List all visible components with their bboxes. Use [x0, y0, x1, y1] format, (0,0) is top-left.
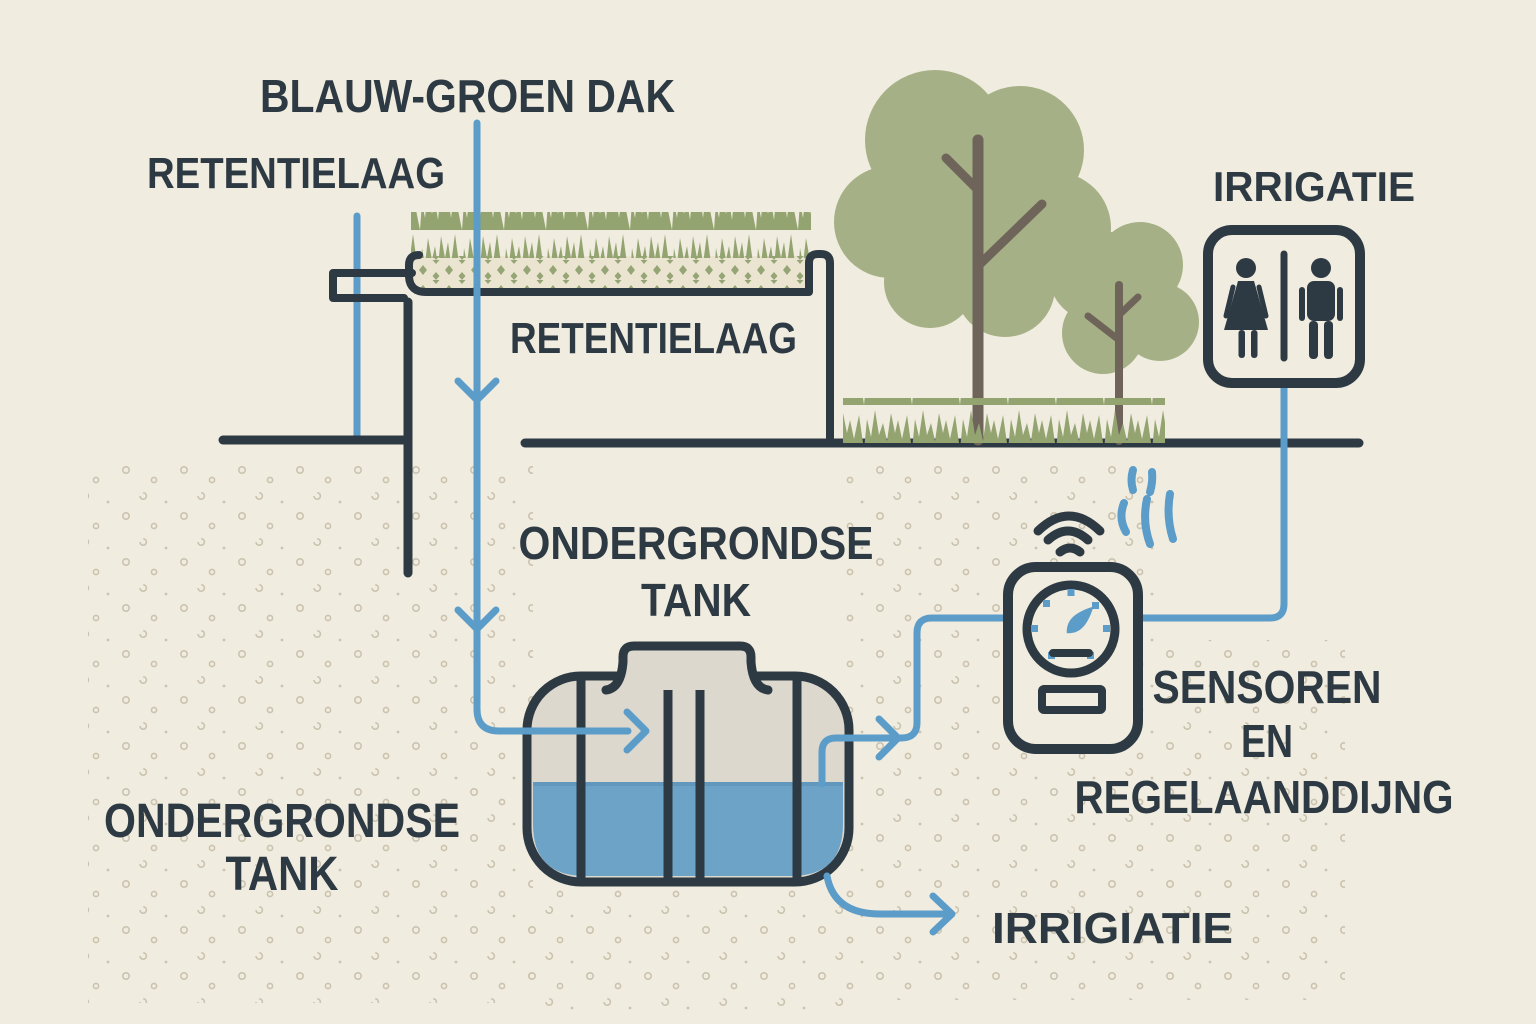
irrigation-bottom-label: IRRIGIATIE [992, 904, 1233, 953]
tank-neck [606, 646, 768, 690]
gauge-tick [1103, 625, 1110, 632]
retention-left-label: RETENTIELAAG [147, 149, 445, 198]
soil-dots-left [88, 458, 533, 1003]
irrigation-top-label: IRRIGATIE [1213, 163, 1415, 210]
tree-canopy-blob [955, 237, 1055, 337]
retention-substrate-pattern [413, 256, 809, 290]
sensors-label-line1: SENSOREN [1153, 661, 1382, 713]
tank-label-bottom-line1: ONDERGRONDSE [104, 795, 460, 848]
gauge-tick [1043, 600, 1050, 607]
sensors-label-line3: REGELAANDDIJNG [1075, 771, 1454, 823]
soil-dots-under-tank [520, 890, 850, 1010]
tank-label-top-line2: TANK [641, 574, 751, 626]
blue-green-roof-diagram: BLAUW-GROEN DAK RETENTIELAAG RETENTIELAA… [0, 0, 1536, 1024]
tank-label-top-line1: ONDERGRONDSE [519, 517, 874, 569]
ground-grass [843, 398, 1165, 443]
diagram-canvas: BLAUW-GROEN DAK RETENTIELAAG RETENTIELAA… [0, 0, 1536, 1024]
underground-tank [527, 646, 849, 882]
restroom-sign-icon [1208, 230, 1360, 383]
gauge-tick [1068, 589, 1075, 596]
gauge-tick [1031, 625, 1038, 632]
retention-roof-label: RETENTIELAAG [510, 314, 797, 363]
tank-label-bottom-line2: TANK [226, 848, 339, 901]
sensors-label-line2: EN [1241, 715, 1293, 767]
roof-title-label: BLAUW-GROEN DAK [260, 70, 675, 122]
roof-grass [411, 212, 811, 258]
